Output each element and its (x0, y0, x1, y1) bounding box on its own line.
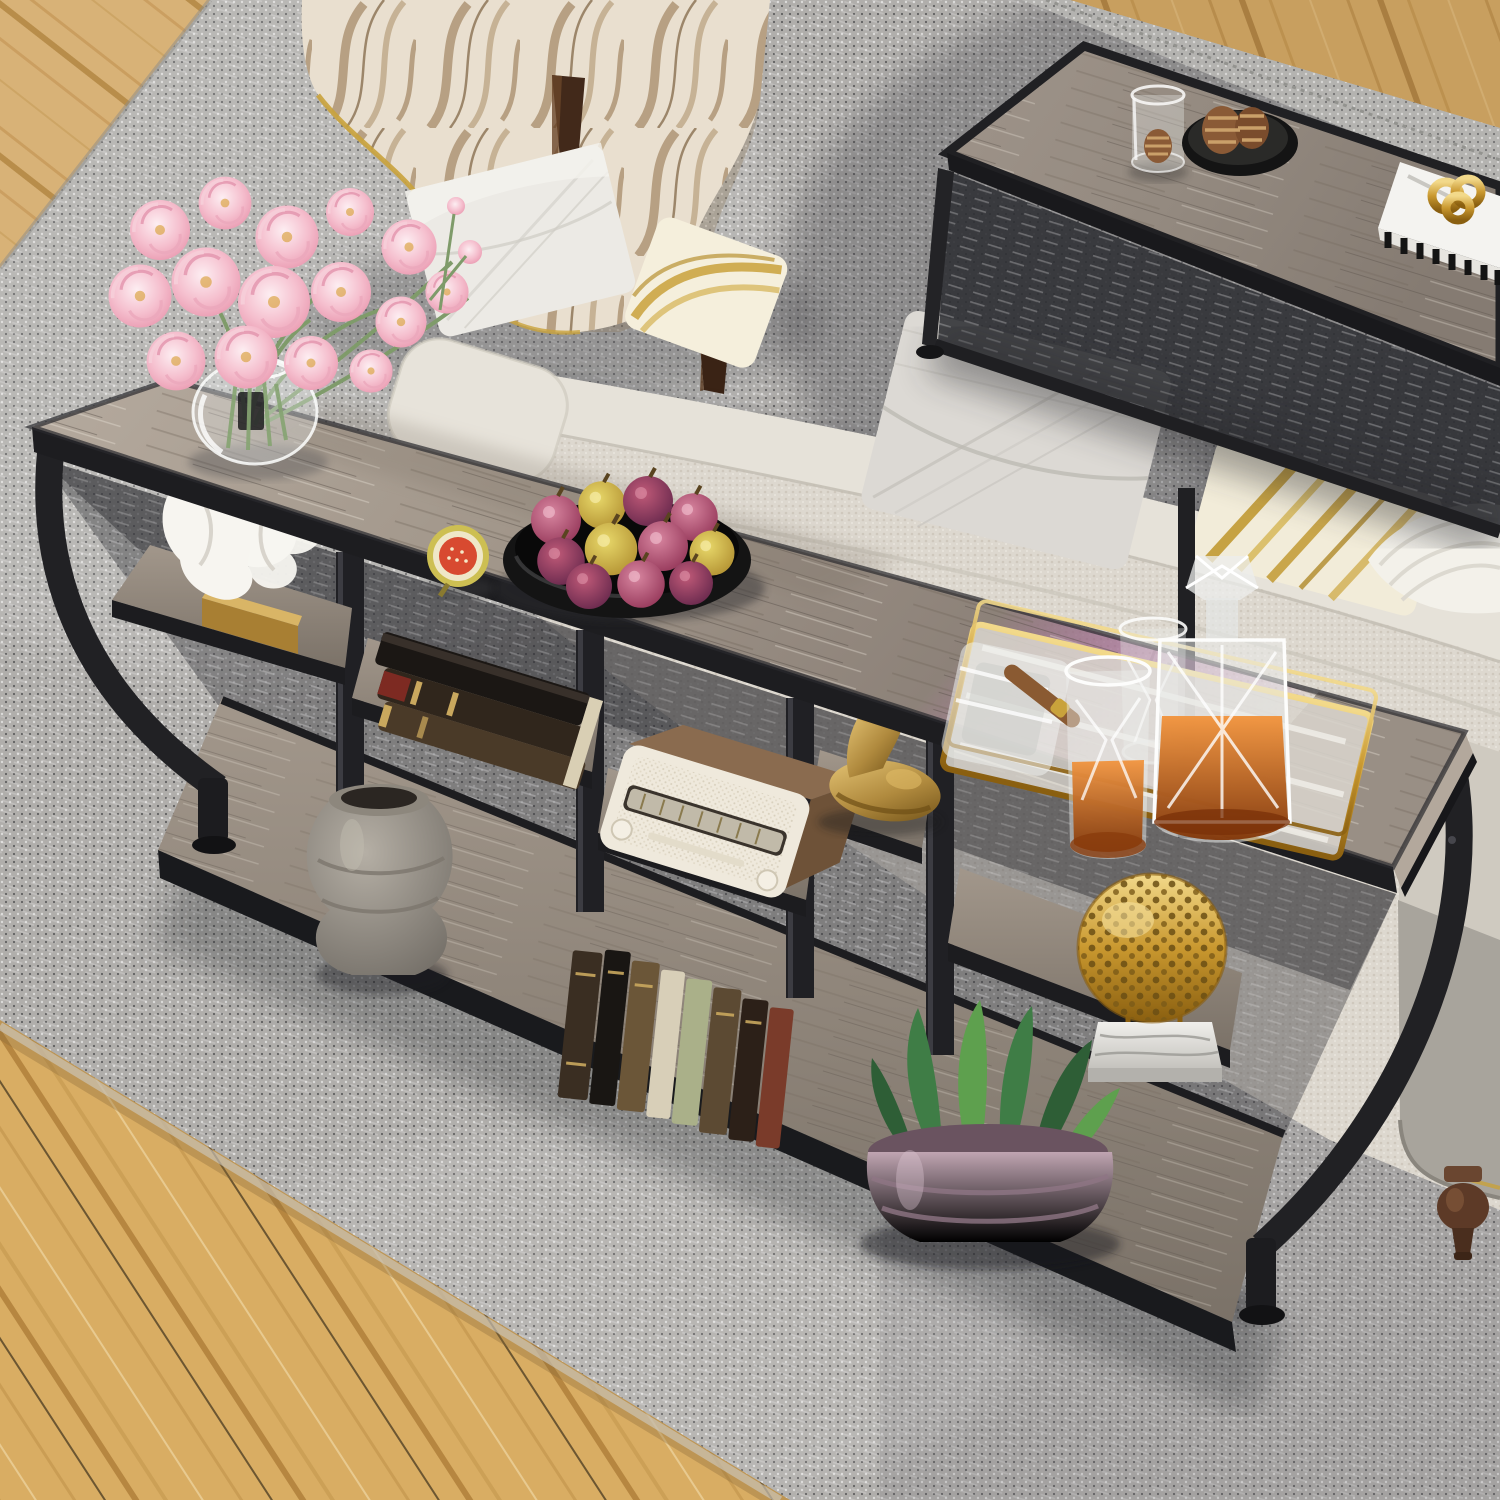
living-room-photo (0, 0, 1500, 1500)
ceramic-urn (307, 784, 453, 995)
gold-sphere (1078, 874, 1226, 1082)
glass-jar-pinecone (1128, 86, 1188, 182)
whiskey-glass (1066, 657, 1150, 859)
